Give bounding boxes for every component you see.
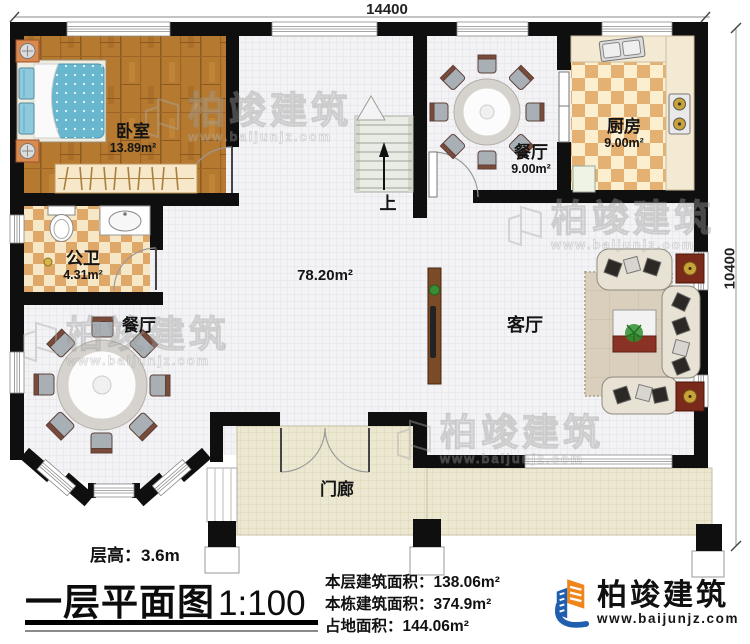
room-label-dining-bottom: 餐厅 (104, 316, 174, 335)
logo-company-name: 柏竣建筑 (597, 580, 739, 612)
stove (669, 94, 690, 134)
title-underline-thin (25, 630, 318, 632)
area-statistics: 本层建筑面积：138.06m² 本栋建筑面积：374.9m² 占地面积：144.… (325, 572, 500, 638)
coffee-table (613, 310, 656, 352)
stairs-up-label: 上 (368, 194, 408, 213)
room-label-living: 客厅 (488, 315, 562, 335)
wardrobe (55, 164, 197, 193)
kitchen-name: 厨房 (589, 117, 659, 136)
plan-scale: 1:100 (218, 584, 306, 624)
company-logo-icon (552, 576, 590, 630)
dining-table-bottom (34, 317, 170, 453)
dining-top-area: 9.00m² (496, 162, 566, 176)
room-label-bathroom: 公卫 4.31m² (48, 249, 118, 282)
bathroom-sink (100, 206, 150, 235)
bedroom-name: 卧室 (98, 122, 168, 141)
dining-bottom-name: 餐厅 (104, 316, 174, 335)
plant (625, 324, 643, 342)
dining-top-name: 餐厅 (496, 143, 566, 162)
stat-floor-area: 本层建筑面积：138.06m² (325, 572, 500, 594)
living-area: 78.20m² (285, 268, 365, 285)
fridge (573, 166, 595, 192)
porch-side-steps (207, 468, 237, 522)
plan-title: 一层平面图 1:100 (25, 572, 306, 626)
stairs-direction: 上 (368, 194, 408, 213)
room-label-bedroom: 卧室 13.89m² (98, 122, 168, 155)
bathroom-name: 公卫 (48, 249, 118, 268)
sofa-set (585, 249, 704, 414)
room-label-dining-top: 餐厅 9.00m² (496, 143, 566, 176)
porch-name: 门廊 (302, 480, 372, 499)
living-name: 客厅 (488, 315, 562, 335)
dimension-width-label: 14400 (352, 1, 422, 18)
logo-website: www.baijunjz.com (597, 611, 739, 626)
tv-cabinet (428, 268, 441, 384)
stat-building-area: 本栋建筑面积：374.9m² (325, 594, 500, 616)
bedroom-area: 13.89m² (98, 141, 168, 155)
bed (17, 60, 106, 142)
room-label-kitchen: 厨房 9.00m² (589, 117, 659, 150)
dimension-height-label: 10400 (722, 239, 739, 299)
room-label-porch: 门廊 (302, 480, 372, 499)
bathroom-area: 4.31m² (48, 268, 118, 282)
living-area-label: 78.20m² (285, 268, 365, 285)
toilet (48, 206, 75, 242)
plan-title-text: 一层平面图 (25, 572, 215, 626)
stat-land-area: 占地面积：144.06m² (325, 616, 500, 638)
title-underline-thick (25, 620, 318, 625)
company-logo: 柏竣建筑 www.baijunjz.com (552, 576, 739, 630)
floor-height-note: 层高：3.6m (90, 541, 180, 566)
kitchen-area: 9.00m² (589, 136, 659, 150)
floor-plan-page: 柏竣建筑 www.baijunjz.com 柏竣建筑 www.baijunjz.… (0, 0, 750, 644)
